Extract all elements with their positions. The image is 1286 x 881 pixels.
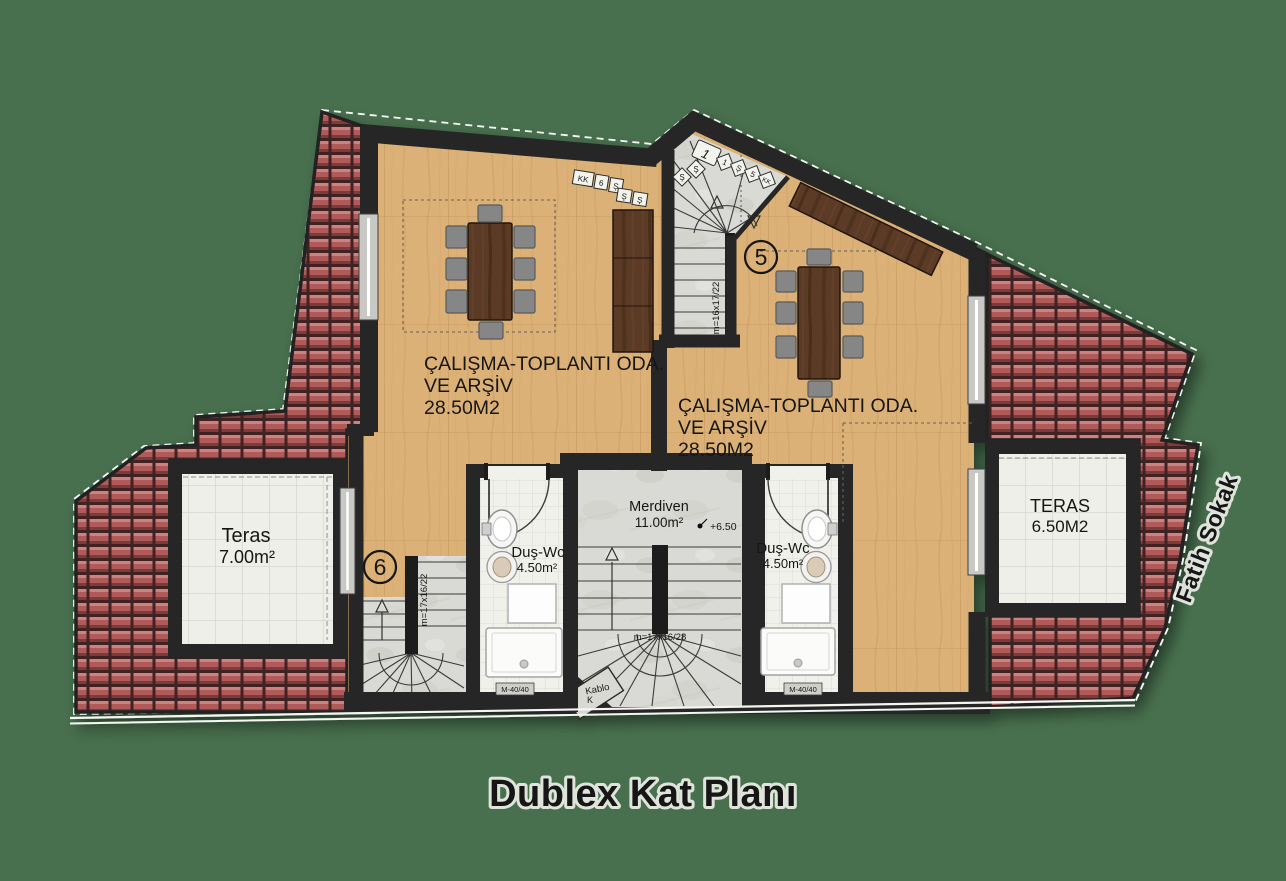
left-bath-area: 4.50m² xyxy=(517,560,558,575)
tag-side-0: Ş xyxy=(679,173,684,182)
plan-title: Dublex Kat Planı Dublex Kat Planı xyxy=(489,773,797,815)
left-office-area: 28.50M2 xyxy=(424,397,500,419)
level-value: +6.50 xyxy=(710,521,737,533)
window-left-terrace xyxy=(340,488,355,594)
shower-right xyxy=(761,628,835,675)
right-office-area: 28.50M2 xyxy=(678,439,754,461)
left-terrace-name: Teras xyxy=(222,525,271,547)
right-office-name-2: VE ARŞİV xyxy=(678,416,767,439)
left-office-name-2: VE ARŞİV xyxy=(424,374,513,397)
left-bath-name: Duş-Wc xyxy=(511,544,565,561)
right-bath-area: 4.50m² xyxy=(763,556,804,571)
left-stair-spec: m=17x16/22 xyxy=(419,574,430,627)
tower-stair-spec: m=16x17/22 xyxy=(711,282,722,335)
right-terrace-name: TERAS xyxy=(1030,496,1090,516)
column-mark-left: M-40/40 xyxy=(501,685,529,694)
floor-plan-svg: 5 6 ÇALIŞMA-TOPLANTI ODA. VE ARŞİV 28.50… xyxy=(0,0,1286,881)
tag-side-1: Ş xyxy=(693,165,698,174)
stair-hall-area: 11.00m² xyxy=(635,515,684,530)
plan-title-text: Dublex Kat Planı xyxy=(489,773,797,815)
right-bath-name: Duş-Wc xyxy=(756,540,810,557)
cabinet-left-office xyxy=(613,210,653,352)
left-office-name-1: ÇALIŞMA-TOPLANTI ODA. xyxy=(424,353,664,375)
window-right-terrace xyxy=(968,469,985,575)
left-terrace-area: 7.00m² xyxy=(219,547,275,567)
washer-right xyxy=(782,584,830,623)
tag-left-0: KK xyxy=(577,174,590,185)
right-terrace-area: 6.50M2 xyxy=(1032,517,1089,536)
unit-6-number: 6 xyxy=(374,554,387,580)
cable-label-short: K xyxy=(587,695,593,705)
washer-left xyxy=(508,584,556,623)
plan-body: 5 6 ÇALIŞMA-TOPLANTI ODA. VE ARŞİV 28.50… xyxy=(70,110,1201,724)
bath-left xyxy=(466,463,578,712)
column-mark-right: M-40/40 xyxy=(789,685,817,694)
window-right-office-east xyxy=(968,296,985,404)
floor-plan: 5 6 ÇALIŞMA-TOPLANTI ODA. VE ARŞİV 28.50… xyxy=(0,0,1286,881)
bath-right xyxy=(751,463,853,712)
stair-hall-name: Merdiven xyxy=(629,499,689,515)
stair-hall-spec: m=17x16/28 xyxy=(634,632,687,643)
stair-hall xyxy=(560,453,752,719)
unit-5-number: 5 xyxy=(755,244,768,270)
shower-left xyxy=(486,628,562,677)
window-left-office-west xyxy=(359,214,378,320)
right-office-name-1: ÇALIŞMA-TOPLANTI ODA. xyxy=(678,395,918,417)
